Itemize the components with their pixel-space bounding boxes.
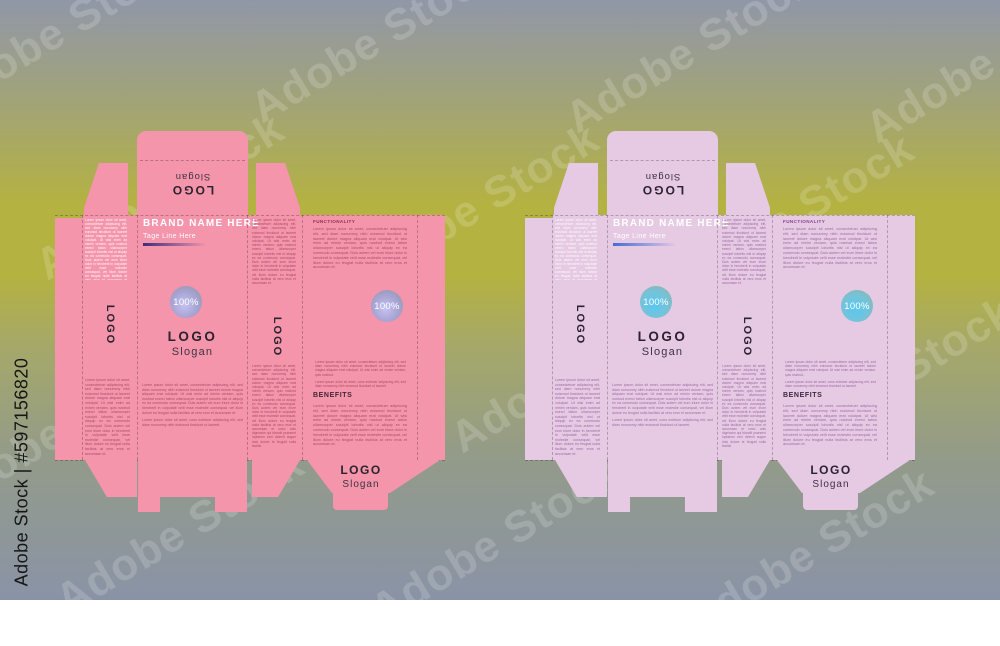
- lorem-paragraph: Lorem ipsum dolor sit amet, consectetuer…: [785, 360, 876, 377]
- lid-tuck-panel: LOGO Slogan: [137, 131, 248, 215]
- front-logo-text: LOGO: [607, 329, 718, 344]
- functionality-paragraph: Lorem ipsum dolor sit amet, consectetuer…: [783, 227, 877, 285]
- percent-text: 100%: [643, 297, 669, 308]
- bottom-slogan-text: Slogan: [331, 479, 391, 490]
- lid-brand-upside-down: LOGO Slogan: [137, 171, 248, 197]
- side-panel2-lorem-top: Lorem ipsum dolor sit amet, consectetuer…: [722, 218, 766, 284]
- lorem-paragraph: Lorem ipsum dolor sit amet, cons ectetue…: [142, 418, 243, 427]
- benefits-paragraph: Lorem ipsum dolor sit amet, consectetuer…: [783, 404, 877, 454]
- benefits-heading: BENEFITS: [783, 392, 822, 399]
- glue-flap: [55, 218, 82, 460]
- front-panel-lorem: Lorem ipsum dolor sit amet, consectetuer…: [612, 383, 713, 455]
- lorem-paragraph: Lorem ipsum dolor sit amet, cons ectetue…: [612, 418, 713, 427]
- vertical-logo-text: LOGO: [574, 305, 586, 345]
- fold-line: [552, 215, 553, 460]
- bottom-flap-brand: LOGO Slogan: [331, 463, 391, 490]
- lid-tuck-panel: LOGO Slogan: [607, 131, 718, 215]
- fold-line: [887, 215, 888, 460]
- bottom-logo-text: LOGO: [801, 463, 861, 477]
- vertical-logo-text: LOGO: [104, 305, 116, 345]
- fold-line: [772, 215, 773, 460]
- tagline-underline: [613, 243, 680, 246]
- front-panel-lorem: Lorem ipsum dolor sit amet, consectetuer…: [142, 383, 243, 455]
- bottom-flap-2: [608, 460, 717, 512]
- side-panel-lorem-top: Lorem ipsum dolor sit amet, consectetuer…: [85, 218, 127, 280]
- dust-flap-left: [554, 163, 598, 215]
- functionality-paragraph: Lorem ipsum dolor sit amet, consectetuer…: [313, 227, 407, 285]
- box-dieline-lavender: LOGO Slogan LOGO Slogan Lorem ipsum dolo…: [525, 131, 915, 512]
- side-panel-vertical-logo: LOGO: [562, 303, 598, 347]
- side-panel-lorem-bottom: Lorem ipsum dolor sit amet, consectetuer…: [85, 378, 130, 459]
- side-panel2-lorem-bottom: Lorem ipsum dolor sit amet, consectetuer…: [722, 364, 766, 459]
- bottom-tuck-tab: [333, 492, 388, 510]
- percent-text: 100%: [374, 301, 400, 312]
- benefits-paragraph: Lorem ipsum dolor sit amet, consectetuer…: [313, 404, 407, 454]
- vertical-logo-text: LOGO: [741, 317, 753, 357]
- lid-slogan-text: Slogan: [607, 171, 718, 182]
- front-slogan-text: Slogan: [137, 346, 248, 358]
- box-dieline-pink: LOGO Slogan LOGO Slogan Lorem ipsum dolo…: [55, 131, 445, 512]
- bottom-flap-3: [722, 460, 770, 497]
- bottom-flap-brand: LOGO Slogan: [801, 463, 861, 490]
- adobe-stock-id-watermark: Adobe Stock | #597156820: [12, 358, 33, 587]
- side-panel2-vertical-logo: LOGO: [259, 315, 295, 359]
- lid-logo-text: LOGO: [607, 183, 718, 197]
- percent-badge: 100%: [371, 290, 403, 322]
- tagline-text: Tage Line Here: [143, 233, 196, 240]
- dust-flap-right: [256, 163, 300, 215]
- side-panel-vertical-logo: LOGO: [92, 303, 128, 347]
- lorem-paragraph: Lorem ipsum dolor sit amet, cons ectetue…: [315, 380, 406, 388]
- functionality-heading: FUNCTIONALITY: [313, 219, 355, 224]
- lid-brand-upside-down: LOGO Slogan: [607, 171, 718, 197]
- lorem-paragraph: Lorem ipsum dolor sit amet, consectetuer…: [142, 383, 243, 415]
- lid-fold-line: [140, 160, 245, 161]
- adobe-stock-watermark: Adobe Stock: [242, 0, 508, 134]
- bottom-tuck-tab: [803, 492, 858, 510]
- percent-badge: 100%: [841, 290, 873, 322]
- adobe-stock-watermark: Adobe Stock: [557, 0, 823, 144]
- back-panel-lorem: Lorem ipsum dolor sit amet, consectetuer…: [315, 360, 406, 390]
- side-panel2-lorem-top: Lorem ipsum dolor sit amet, consectetuer…: [252, 218, 296, 284]
- adobe-stock-watermark: Adobe Stock: [0, 0, 193, 124]
- lorem-paragraph: Lorem ipsum dolor sit amet, cons ectetue…: [785, 380, 876, 388]
- functionality-heading: FUNCTIONALITY: [783, 219, 825, 224]
- dust-flap-left: [84, 163, 128, 215]
- tagline-underline: [143, 243, 210, 246]
- side-panel-lorem-bottom: Lorem ipsum dolor sit amet, consectetuer…: [555, 378, 600, 459]
- fold-line: [417, 215, 418, 460]
- lid-fold-line: [610, 160, 715, 161]
- front-logo-block: LOGO Slogan: [607, 329, 718, 358]
- lorem-paragraph: Lorem ipsum dolor sit amet, consectetuer…: [315, 360, 406, 377]
- bottom-slogan-text: Slogan: [801, 479, 861, 490]
- bottom-flap-1: [85, 460, 137, 497]
- side-panel2-vertical-logo: LOGO: [729, 315, 765, 359]
- fold-line: [82, 215, 83, 460]
- bottom-flap-3: [252, 460, 300, 497]
- fold-line: [525, 215, 915, 216]
- lid-logo-text: LOGO: [137, 183, 248, 197]
- bottom-logo-text: LOGO: [331, 463, 391, 477]
- side-panel-lorem-top: Lorem ipsum dolor sit amet, consectetuer…: [555, 218, 597, 280]
- front-logo-text: LOGO: [137, 329, 248, 344]
- lorem-paragraph: Lorem ipsum dolor sit amet, consectetuer…: [612, 383, 713, 415]
- percent-text: 100%: [844, 301, 870, 312]
- front-slogan-text: Slogan: [607, 346, 718, 358]
- brand-name-heading: BRAND NAME HERE: [613, 218, 730, 229]
- lid-slogan-text: Slogan: [137, 171, 248, 182]
- benefits-heading: BENEFITS: [313, 392, 352, 399]
- tagline-text: Tage Line Here: [613, 233, 666, 240]
- front-logo-block: LOGO Slogan: [137, 329, 248, 358]
- back-panel-lorem: Lorem ipsum dolor sit amet, consectetuer…: [785, 360, 876, 390]
- fold-line: [55, 215, 445, 216]
- fold-line: [302, 215, 303, 460]
- bottom-flap-1: [555, 460, 607, 497]
- dust-flap-right: [726, 163, 770, 215]
- percent-text: 100%: [173, 297, 199, 308]
- percent-badge: 100%: [640, 286, 672, 318]
- percent-badge: 100%: [170, 286, 202, 318]
- glue-flap: [525, 218, 552, 460]
- gradient-background: Adobe Stock Adobe Stock Adobe Stock Adob…: [0, 0, 1000, 600]
- vertical-logo-text: LOGO: [271, 317, 283, 357]
- side-panel2-lorem-bottom: Lorem ipsum dolor sit amet, consectetuer…: [252, 364, 296, 459]
- brand-name-heading: BRAND NAME HERE: [143, 218, 260, 229]
- bottom-flap-2: [138, 460, 247, 512]
